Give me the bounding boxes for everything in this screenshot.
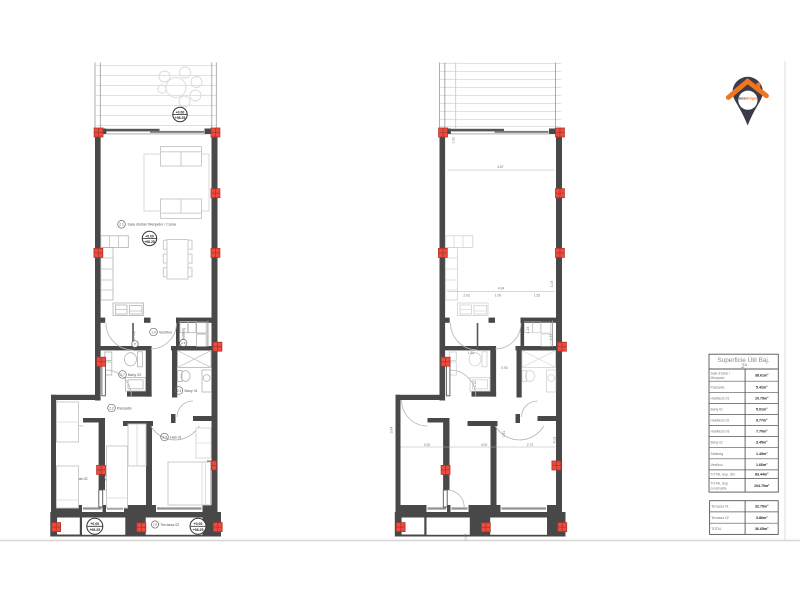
svg-text:1.0: 1.0 bbox=[151, 330, 156, 334]
svg-text:83.44m²: 83.44m² bbox=[755, 473, 769, 477]
svg-text:2.9: 2.9 bbox=[181, 341, 186, 345]
svg-text:3.00: 3.00 bbox=[481, 443, 488, 447]
svg-text:2.02: 2.02 bbox=[463, 294, 470, 298]
svg-text:Passadís: Passadís bbox=[711, 385, 725, 389]
svg-text:+0.00: +0.00 bbox=[145, 234, 154, 238]
svg-text:32.79m²: 32.79m² bbox=[755, 505, 769, 509]
svg-text:1.66m²: 1.66m² bbox=[756, 463, 768, 467]
svg-text:Vestíbul: Vestíbul bbox=[159, 330, 172, 334]
svg-text:Terrassa 01: Terrassa 01 bbox=[711, 505, 729, 509]
svg-text:+98.25: +98.25 bbox=[144, 240, 155, 244]
svg-text:TOTAL: TOTAL bbox=[711, 527, 722, 531]
svg-text:+98.25: +98.25 bbox=[175, 116, 186, 120]
svg-text:Sala d'estar /: Sala d'estar / bbox=[711, 372, 731, 376]
svg-text:4.87: 4.87 bbox=[497, 165, 504, 169]
svg-text:mésBrique: mésBrique bbox=[738, 96, 758, 100]
svg-text:3.86m²: 3.86m² bbox=[756, 516, 768, 520]
svg-text:Terrassa 02: Terrassa 02 bbox=[711, 516, 729, 520]
svg-text:Bany 01: Bany 01 bbox=[711, 408, 724, 412]
svg-text:TOTAL Sup.: TOTAL Sup. bbox=[711, 481, 729, 485]
svg-text:Hab 01: Hab 01 bbox=[170, 435, 182, 439]
svg-text:Safareig: Safareig bbox=[182, 328, 186, 340]
svg-text:Habitació 03: Habitació 03 bbox=[711, 430, 730, 434]
svg-text:9.77m²: 9.77m² bbox=[756, 419, 768, 423]
svg-text:Sala d'estar/ Menjador / Cuina: Sala d'estar/ Menjador / Cuina bbox=[128, 223, 176, 227]
svg-text:2.1: 2.1 bbox=[119, 223, 124, 227]
svg-text:38.61m²: 38.61m² bbox=[755, 374, 769, 378]
svg-text:104.70m²: 104.70m² bbox=[754, 484, 770, 488]
svg-text:Safareig: Safareig bbox=[711, 452, 724, 456]
svg-text:+98.25: +98.25 bbox=[193, 528, 204, 532]
svg-text:5.42m²: 5.42m² bbox=[756, 385, 768, 389]
svg-text:2.2: 2.2 bbox=[109, 406, 114, 410]
svg-text:Passadís: Passadís bbox=[117, 406, 132, 410]
svg-text:10.79m²: 10.79m² bbox=[755, 396, 769, 400]
svg-text:1.00: 1.00 bbox=[495, 294, 502, 298]
svg-text:+0.00: +0.00 bbox=[90, 522, 99, 526]
svg-text:0.91: 0.91 bbox=[502, 431, 506, 438]
svg-text:1.52: 1.52 bbox=[534, 294, 541, 298]
svg-text:2.00: 2.00 bbox=[424, 443, 431, 447]
svg-text:Habitació 01: Habitació 01 bbox=[711, 396, 730, 400]
svg-text:+0.00: +0.00 bbox=[176, 110, 185, 114]
svg-text:2.4: 2.4 bbox=[177, 389, 182, 393]
svg-text:0.93: 0.93 bbox=[501, 366, 508, 370]
svg-text:5.01m²: 5.01m² bbox=[756, 408, 768, 412]
svg-text:7.70m²: 7.70m² bbox=[756, 430, 768, 434]
svg-text:36.65m²: 36.65m² bbox=[755, 527, 769, 531]
svg-text:2.72: 2.72 bbox=[527, 443, 534, 447]
svg-text:2ª: 2ª bbox=[741, 363, 747, 370]
svg-text:3.64: 3.64 bbox=[390, 427, 394, 434]
svg-text:4.03: 4.03 bbox=[552, 437, 556, 444]
svg-text:1.71: 1.71 bbox=[549, 334, 553, 341]
svg-text:+0.00: +0.00 bbox=[194, 522, 203, 526]
svg-text:2.3: 2.3 bbox=[162, 435, 167, 439]
svg-text:P: P bbox=[134, 342, 136, 346]
svg-text:Habitació 02: Habitació 02 bbox=[711, 419, 730, 423]
svg-text:2.8: 2.8 bbox=[153, 523, 158, 527]
svg-text:4.94: 4.94 bbox=[498, 287, 505, 291]
svg-text:3.19: 3.19 bbox=[550, 281, 554, 288]
svg-text:1.49m²: 1.49m² bbox=[756, 452, 768, 456]
svg-text:construïda: construïda bbox=[711, 486, 727, 490]
svg-text:0.30: 0.30 bbox=[452, 137, 456, 144]
svg-text:Menjador: Menjador bbox=[711, 376, 726, 380]
svg-text:Bany 02: Bany 02 bbox=[128, 373, 141, 377]
svg-text:TOTAL Sup. Útil: TOTAL Sup. Útil bbox=[711, 472, 735, 477]
svg-text:+98.25: +98.25 bbox=[89, 528, 100, 532]
svg-text:3.45m²: 3.45m² bbox=[756, 441, 768, 445]
svg-text:1.84: 1.84 bbox=[468, 351, 475, 355]
svg-text:Vestíbul: Vestíbul bbox=[711, 463, 723, 467]
svg-text:1.23: 1.23 bbox=[526, 327, 530, 334]
svg-text:Bany 02: Bany 02 bbox=[711, 441, 724, 445]
svg-text:0.92: 0.92 bbox=[464, 534, 468, 541]
svg-text:Bany 01: Bany 01 bbox=[185, 389, 198, 393]
svg-text:1.12: 1.12 bbox=[473, 381, 477, 388]
svg-text:Terrassa 02: Terrassa 02 bbox=[161, 523, 180, 527]
svg-text:2.7: 2.7 bbox=[120, 373, 125, 377]
